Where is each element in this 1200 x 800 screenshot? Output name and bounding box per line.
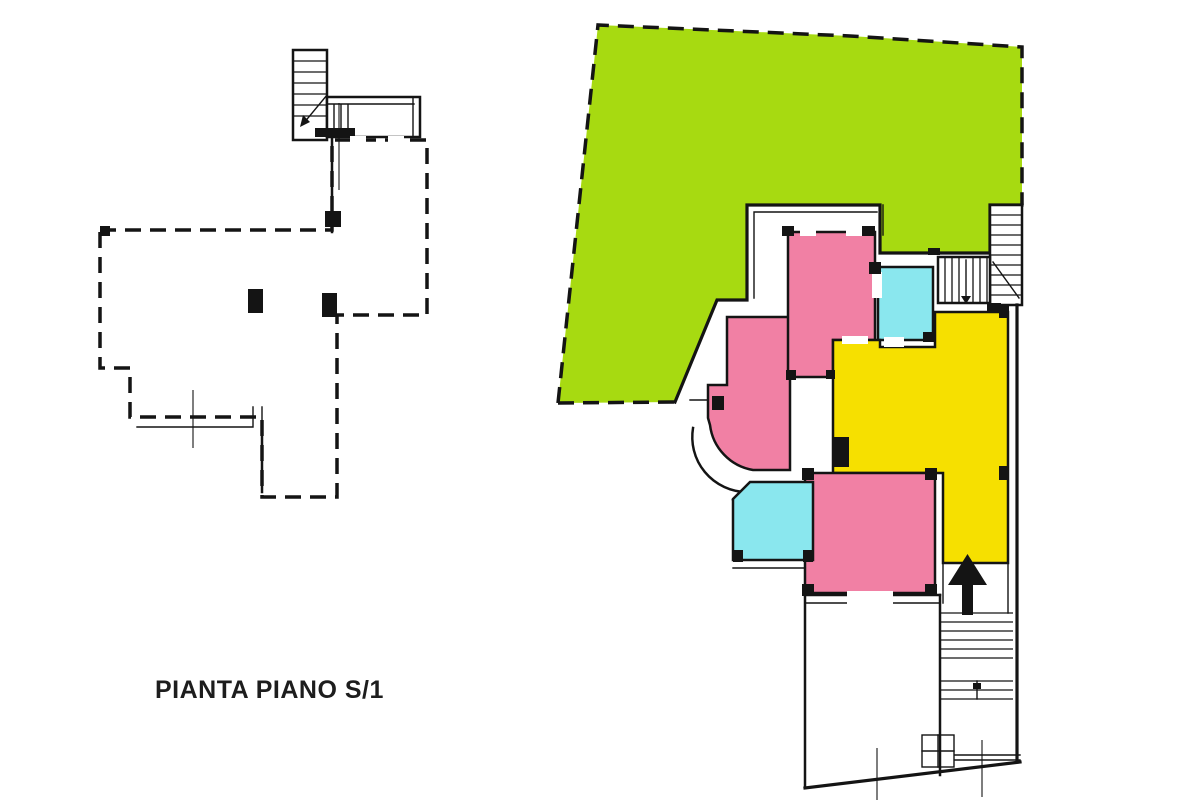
floorplan-canvas: PIANTA PIANO S/1 [0,0,1200,800]
left-staircase [293,50,420,140]
left-green-area [100,140,427,497]
window-gap [800,228,816,236]
plan-caption: PIANTA PIANO S/1 [155,676,384,705]
pillar [923,332,935,342]
pillar [325,211,341,227]
room-pink-left [708,317,790,470]
room-cyan-top [878,267,933,340]
pillar [862,226,875,236]
pillar [803,550,813,562]
pillar [925,584,937,596]
pillar [786,370,796,380]
window-gap [350,136,366,144]
pillar [826,370,835,379]
dimension-lines [193,103,339,448]
door-gap [842,336,868,344]
pillar [925,468,937,480]
room-cyan-bottom [733,482,813,560]
pillar [869,262,881,274]
pillar [782,226,794,236]
pillar [733,550,743,562]
hall-bottom-wall [805,762,1020,788]
stair-flight [293,50,327,140]
door-gap [847,591,893,605]
pillar [100,226,110,236]
pillar [712,396,724,410]
pillar [833,437,849,467]
pillar [928,248,940,255]
stair-post [973,683,981,689]
pillar [999,466,1009,480]
landing-wall [315,128,355,137]
pillar [248,289,263,313]
right-plan [558,25,1022,800]
entrance-stair-treads [940,613,1013,658]
pillar [987,303,1001,311]
door-gap [884,337,904,347]
left-plan [100,50,427,497]
door-gap [872,272,882,298]
pillar [802,584,814,596]
window-gap [388,136,404,144]
pillar [802,468,814,480]
room-pink-bottom [805,473,935,593]
pillar [322,293,337,317]
